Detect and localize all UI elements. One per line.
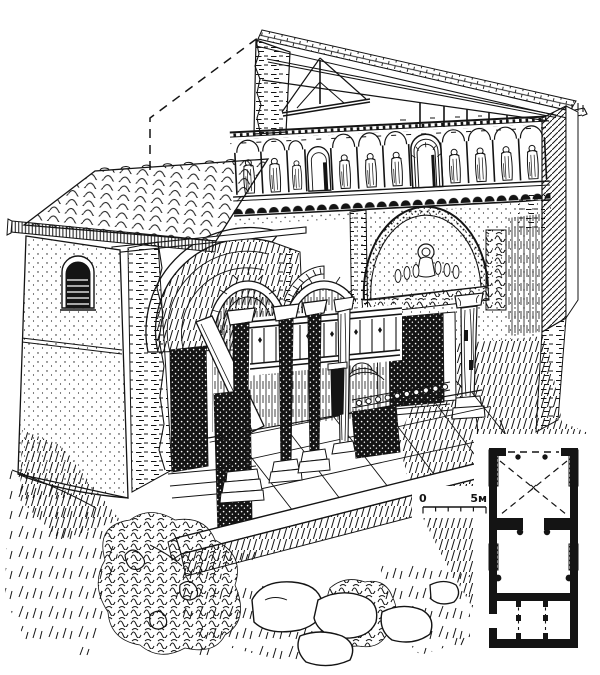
ashlar-streaks [508,214,540,336]
arched-window [60,256,96,310]
scale-zero-label: 0 [419,492,427,505]
illustration-canvas: 0 5м [0,0,600,675]
plan-column-dot [542,454,547,459]
church-cutaway-drawing: 0 5м [0,0,600,675]
frieze-window-small [307,146,331,191]
frieze-window-central [410,133,443,187]
scale-length-label: 5м [470,492,487,505]
arch-pier [278,248,292,302]
decorated-pilaster [486,230,506,310]
plan-column-dot [515,454,520,459]
